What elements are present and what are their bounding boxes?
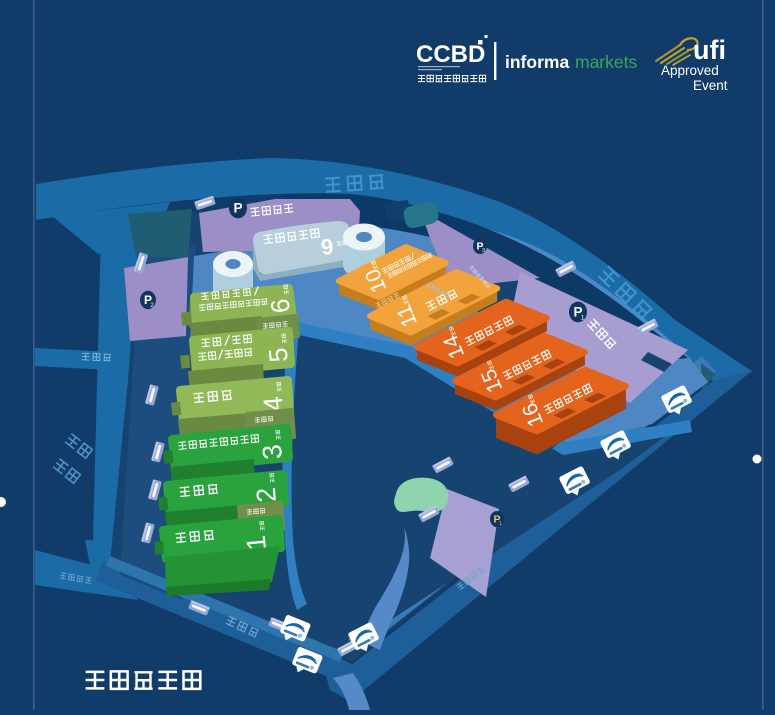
svg-text:1: 1 xyxy=(499,521,502,527)
svg-text:5: 5 xyxy=(263,346,294,363)
svg-text:P: P xyxy=(233,201,242,216)
svg-text:CCBD: CCBD xyxy=(416,41,485,68)
svg-text:Approved: Approved xyxy=(661,63,719,78)
svg-text:2: 2 xyxy=(251,486,282,504)
svg-text:3: 3 xyxy=(482,248,485,254)
svg-text:Event: Event xyxy=(693,78,728,93)
svg-text:6: 6 xyxy=(265,297,296,314)
svg-text:informa: informa xyxy=(505,52,569,72)
svg-text:ufi: ufi xyxy=(693,35,726,65)
svg-text:1: 1 xyxy=(581,315,585,322)
svg-text:3: 3 xyxy=(257,443,288,461)
svg-text:markets: markets xyxy=(575,52,637,72)
